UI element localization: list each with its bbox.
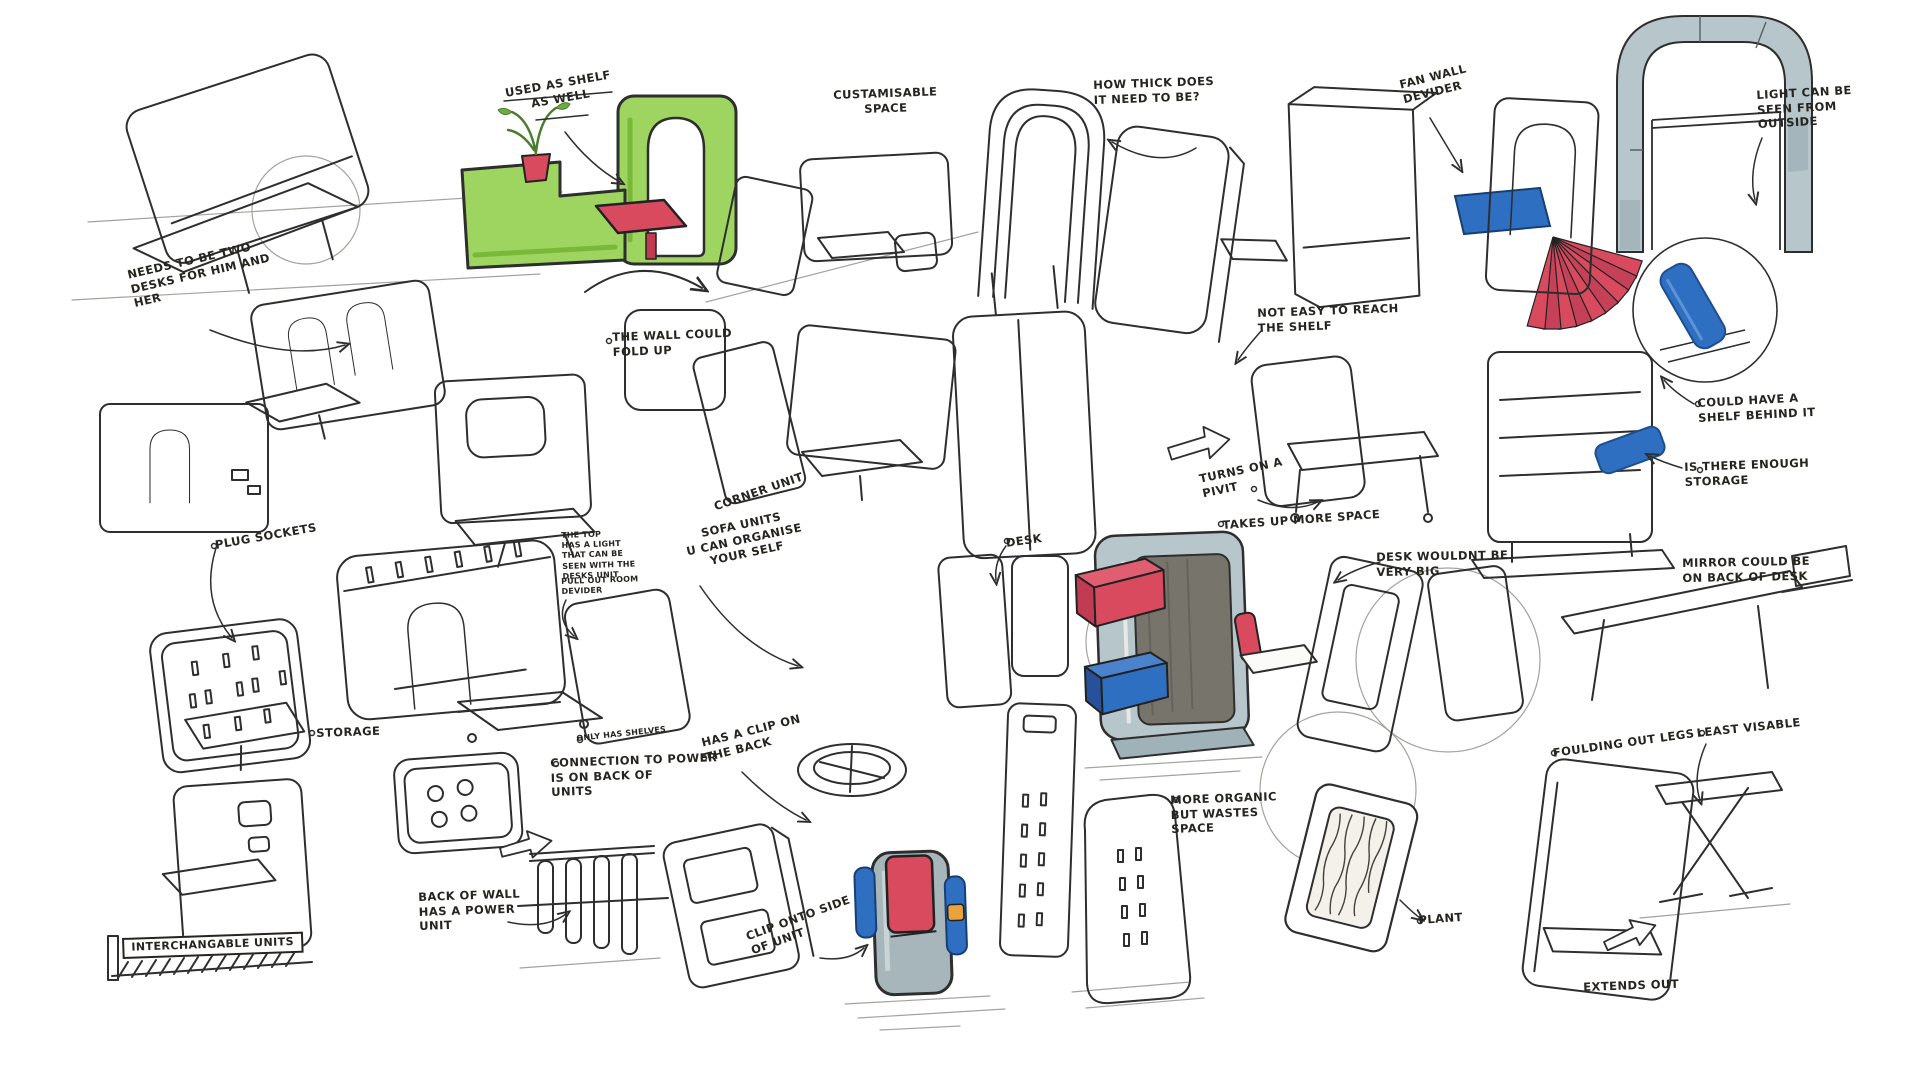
orange-clip xyxy=(947,904,964,921)
sketch-pivot-desk xyxy=(1250,355,1438,522)
plant-leaves xyxy=(508,108,556,154)
sketch-fan-host-box xyxy=(1288,83,1444,308)
sketch-extend-unit xyxy=(1521,757,1696,1001)
grey-arch-frame xyxy=(1617,16,1812,252)
sketch-green-shelf-unit xyxy=(462,96,736,268)
sketch-plant-panel xyxy=(1282,782,1420,955)
note-plant: PLANT xyxy=(1418,910,1463,928)
sketch-cube-shelf xyxy=(661,819,815,990)
red-clip-panel xyxy=(886,855,935,933)
sketch-desk-slabs xyxy=(938,554,1068,708)
sketch-customisable-space xyxy=(715,152,952,297)
sketch-shelf-unit xyxy=(1472,352,1674,578)
note-how-thick: HOW THICK DOES IT NEED TO BE? xyxy=(1093,74,1215,108)
note-enough-storage: IS THERE ENOUGH STORAGE xyxy=(1684,456,1810,490)
sketch-dark-desk xyxy=(184,702,306,774)
sketch-top-light-unit xyxy=(335,538,567,721)
note-storage: STORAGE xyxy=(316,724,381,741)
sketch-pouf xyxy=(798,744,906,796)
fan-wall-divider xyxy=(1455,188,1642,329)
note-more-organic: MORE ORGANIC BUT WASTES SPACE xyxy=(1170,789,1278,837)
note-pull-out-divider: PULL OUT ROOM DEVIDER xyxy=(561,574,639,597)
note-shelf-behind: COULD HAVE A SHELF BEHIND IT xyxy=(1697,390,1816,426)
sketch-two-arch-unit xyxy=(231,279,449,450)
note-not-easy-reach: NOT EASY TO REACH THE SHELF xyxy=(1257,301,1400,335)
note-connection-power: CONNECTION TO POWER IS ON BACK OF UNITS xyxy=(550,750,719,800)
note-light-seen-outside: LIGHT CAN BE SEEN FROM OUTSIDE xyxy=(1756,83,1854,132)
sketch-tall-slab xyxy=(950,265,1097,560)
blue-shelf xyxy=(1455,188,1550,234)
sketch-tall-arch-frame xyxy=(978,86,1108,308)
sketch-plug-panel xyxy=(148,617,312,774)
sketch-circle-detail xyxy=(1633,238,1777,382)
colored-clip-unit xyxy=(854,850,969,996)
sketch-interchangeable-unit xyxy=(157,778,312,956)
sketch-mirror-desk xyxy=(1295,554,1524,754)
sketch-canvas xyxy=(0,0,1920,1080)
sketch-wall-arch-left xyxy=(100,404,268,532)
colored-center-unit xyxy=(1074,529,1320,760)
plant-pot xyxy=(522,154,550,182)
note-customisable-space: CUSTAMISABLE SPACE xyxy=(833,84,938,117)
sketch-power-box xyxy=(393,752,523,854)
sketch-sheet: USED AS SHELF AS WELL CUSTAMISABLE SPACE… xyxy=(0,0,1920,1080)
note-wall-fold-up: THE WALL COULD FOLD UP xyxy=(612,326,733,360)
sketch-fold-desk-unit xyxy=(458,587,692,745)
sketch-socket-cabinet xyxy=(1000,703,1077,957)
block-arrow-power xyxy=(498,828,553,862)
note-desk-not-big: DESK WOULDNT BE VERY BIG xyxy=(1376,548,1509,580)
blue-clip-left xyxy=(854,867,876,938)
sketch-power-rail-wall xyxy=(518,846,668,954)
note-back-wall-power: BACK OF WALL HAS A POWER UNIT xyxy=(418,886,521,934)
block-arrow-right xyxy=(1166,424,1232,464)
note-mirror-back: MIRROR COULD BE ON BACK OF DESK xyxy=(1682,554,1810,586)
